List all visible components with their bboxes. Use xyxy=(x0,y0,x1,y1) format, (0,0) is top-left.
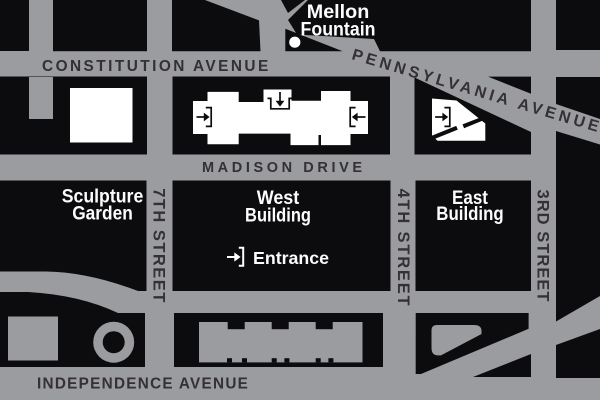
svg-text:Fountain: Fountain xyxy=(301,19,376,41)
svg-text:Garden: Garden xyxy=(72,203,133,225)
svg-text:Building: Building xyxy=(436,203,503,225)
svg-text:4TH STREET: 4TH STREET xyxy=(394,189,412,308)
svg-text:MADISON DRIVE: MADISON DRIVE xyxy=(202,160,366,176)
svg-text:7TH STREET: 7TH STREET xyxy=(150,188,168,304)
svg-text:INDEPENDENCE AVENUE: INDEPENDENCE AVENUE xyxy=(37,376,249,393)
svg-text:3RD STREET: 3RD STREET xyxy=(533,190,551,303)
svg-text:CONSTITUTION AVENUE: CONSTITUTION AVENUE xyxy=(42,58,271,75)
svg-text:Entrance: Entrance xyxy=(253,248,329,268)
svg-text:Building: Building xyxy=(245,205,311,227)
